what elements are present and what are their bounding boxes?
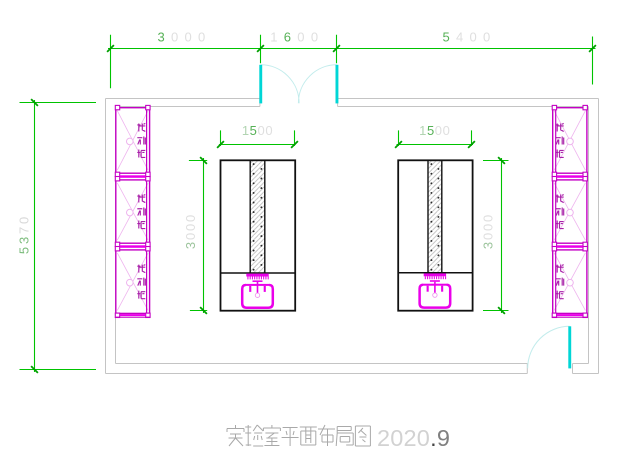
svg-text:1500: 1500 <box>419 123 450 138</box>
svg-text:3000: 3000 <box>183 213 198 249</box>
svg-text:3000: 3000 <box>157 30 211 45</box>
svg-text:1600: 1600 <box>270 30 324 45</box>
svg-text:5370: 5370 <box>17 214 32 254</box>
svg-text:5400: 5400 <box>442 30 496 45</box>
svg-text:1500: 1500 <box>242 123 273 138</box>
svg-text:3000: 3000 <box>481 213 496 249</box>
svg-text:2020.9: 2020.9 <box>377 425 450 451</box>
